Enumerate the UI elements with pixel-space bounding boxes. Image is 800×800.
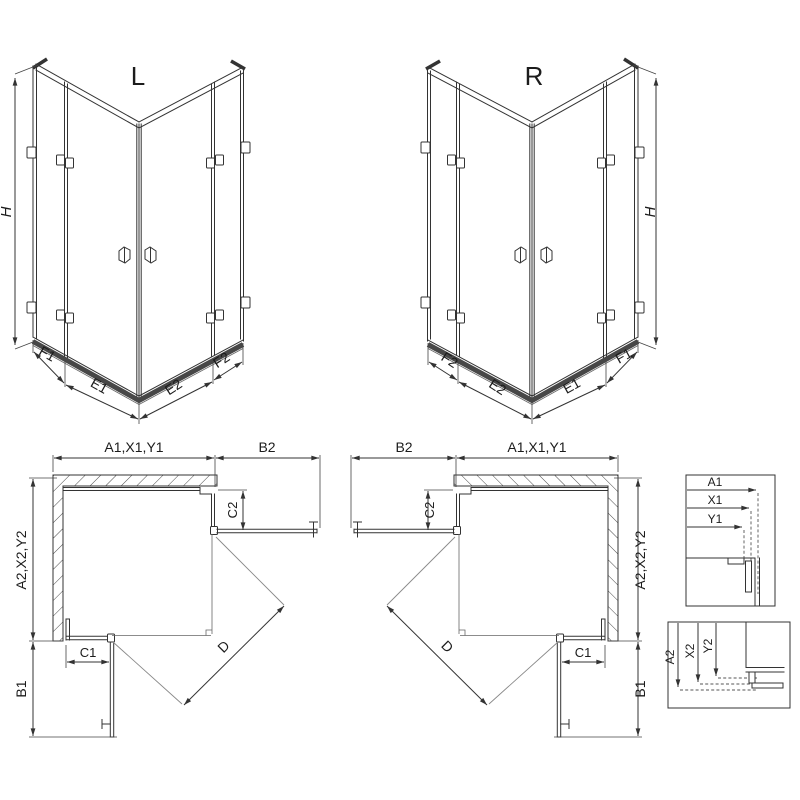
detail-label-y2: Y2 <box>701 638 715 653</box>
glass-panel-c1 <box>66 619 108 640</box>
detail-label-a2: A2 <box>663 649 677 664</box>
variant-label-l: L <box>131 61 145 91</box>
top-rail-left-wall <box>36 64 139 128</box>
dim-label-b1-r: B1 <box>632 680 648 697</box>
dim-label-d: D <box>214 637 232 655</box>
detail-a2x2y2: A2 X2 Y2 <box>663 622 790 708</box>
outer-edge-left <box>33 66 37 339</box>
glass-panel-a1 <box>63 488 212 495</box>
dim-label-b2-r: B2 <box>395 439 412 455</box>
door-handle-right <box>145 247 156 263</box>
hinge-right-door-top <box>207 155 224 168</box>
detail-label-x1: X1 <box>708 493 723 507</box>
plan-dimensions <box>29 455 320 737</box>
iso-enclosure-geometry <box>15 59 250 424</box>
enclosure-footprint <box>112 534 212 636</box>
wall-bracket-left-bottom <box>27 302 36 313</box>
technical-drawing-page: L H F1 E1 E2 F2 R H F2 E2 E1 F1 <box>0 0 800 800</box>
detail-a1x1y1: A1 X1 Y1 <box>686 475 775 606</box>
drawing-canvas: L H F1 E1 E2 F2 R H F2 E2 E1 F1 <box>0 0 800 800</box>
wall-bracket-left-top <box>27 147 36 158</box>
plan-geometry <box>29 455 320 737</box>
top-rail-right-wall <box>139 67 243 128</box>
dim-label-c2: C2 <box>225 502 240 519</box>
hinge-left-door-top <box>57 155 74 168</box>
wall-bracket-right-bottom <box>241 297 250 308</box>
dim-label-d-r: D <box>438 637 456 655</box>
door-handle-left <box>119 247 130 263</box>
door-handle <box>102 720 110 729</box>
iso-view-l: L H F1 E1 E2 F2 <box>0 61 233 398</box>
corner-edge <box>137 124 141 397</box>
dim-label-b2: B2 <box>258 439 275 455</box>
dim-label-a1x1y1-r: A1,X1,Y1 <box>507 439 566 455</box>
plan-view-r: B2 A1,X1,Y1 A2,X2,Y2 B1 C2 C1 D <box>351 439 648 737</box>
door-open-down <box>102 634 115 737</box>
door-swing-line-down <box>113 642 182 704</box>
dim-label-a2x2y2-r: A2,X2,Y2 <box>632 530 648 589</box>
door-open-right <box>211 522 318 537</box>
corner-cap-right <box>231 61 245 69</box>
variant-label-r: R <box>525 61 544 91</box>
detail-label-y1: Y1 <box>708 512 723 526</box>
dim-label-h-right: H <box>642 206 659 217</box>
glass-panel-c2 <box>212 494 215 528</box>
wall-section <box>53 475 217 641</box>
profile-section-vertical <box>746 668 784 689</box>
dim-diagonal-d <box>184 606 284 705</box>
dim-label-c1-r: C1 <box>575 645 592 660</box>
hinge-left-door-bottom <box>57 310 74 323</box>
detail-label-a1: A1 <box>708 475 723 489</box>
iso-view-r: R H F2 E2 E1 F1 <box>421 59 659 424</box>
profile-section-horizontal <box>728 558 760 606</box>
wall-bracket-right-top <box>241 142 250 153</box>
dim-label-c2-r: C2 <box>422 502 437 519</box>
dim-label-c1: C1 <box>80 645 97 660</box>
dim-label-a1x1y1: A1,X1,Y1 <box>104 439 163 455</box>
detail-label-x2: X2 <box>683 643 697 658</box>
dim-label-h-left: H <box>0 206 15 217</box>
dim-label-b1: B1 <box>13 680 29 697</box>
door-swing-line-right <box>216 537 284 605</box>
hinge-right-door-bottom <box>207 310 224 323</box>
dim-label-a2x2y2: A2,X2,Y2 <box>13 530 29 589</box>
